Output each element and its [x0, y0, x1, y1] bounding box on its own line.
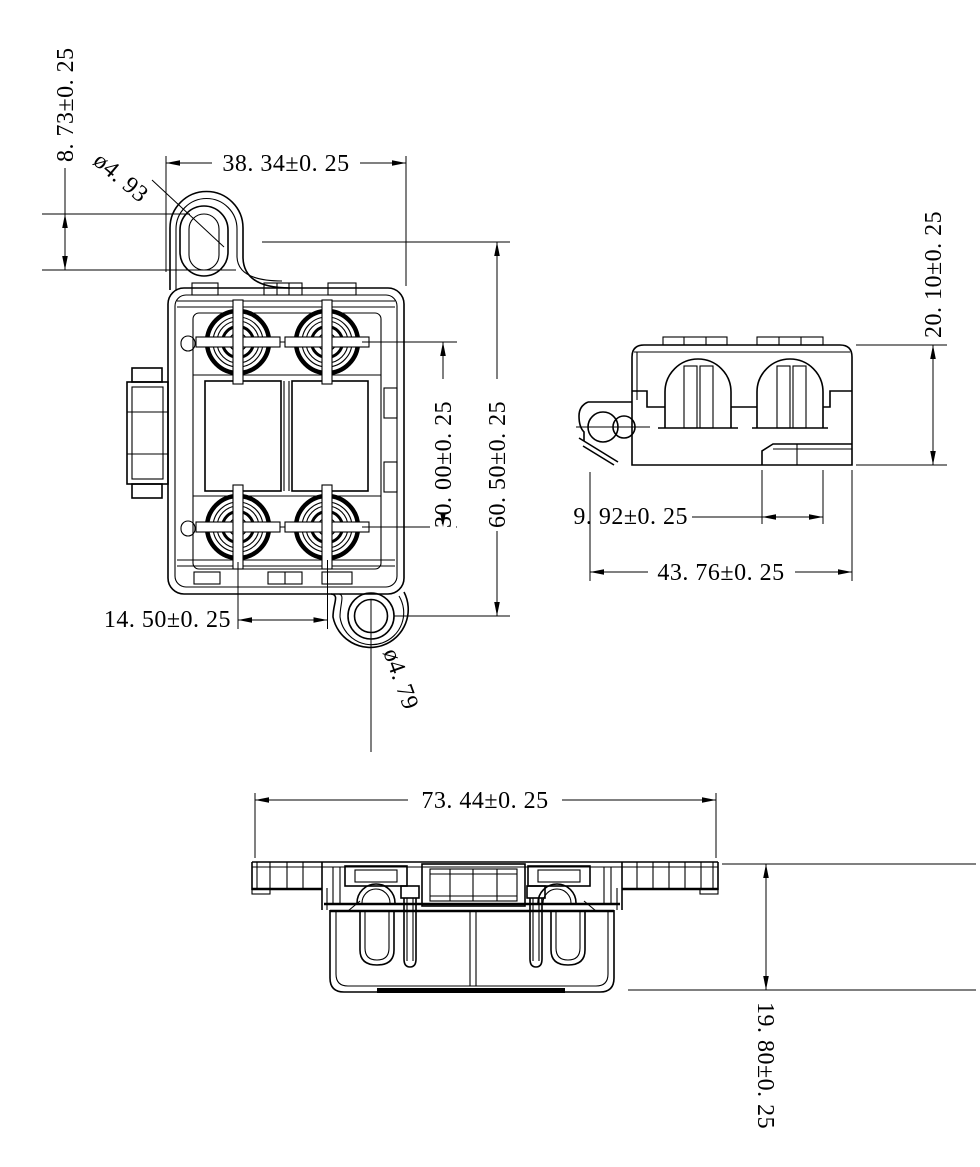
slot-hole-outer [180, 206, 228, 276]
retention-pin [527, 886, 545, 967]
dim-side-height: 20. 10±0. 25 [856, 211, 947, 465]
terminal-stud [285, 485, 369, 569]
dim-bottom-height-label: 19. 80±0. 25 [752, 1002, 778, 1129]
dim-stud-spacing: 14. 50±0. 25 [104, 560, 328, 633]
technical-drawing: 8. 73±0. 25 ø4. 93 38. 34±0. 25 30. 00±0… [0, 0, 980, 1167]
dim-top-width: 38. 34±0. 25 [166, 151, 406, 286]
technical-drawing-page: 8. 73±0. 25 ø4. 93 38. 34±0. 25 30. 00±0… [0, 0, 980, 1167]
slot-hole-inner [189, 214, 219, 270]
retention-pin [401, 886, 419, 967]
dim-bottom-width-label: 73. 44±0. 25 [421, 788, 548, 814]
dim-slot-diameter-label: ø4. 93 [88, 148, 153, 208]
right-wall-rib [384, 462, 397, 492]
mounting-tab-top [170, 192, 290, 291]
mounting-tab-bottom [331, 592, 408, 647]
dim-side-depth-label: 43. 76±0. 25 [657, 560, 784, 586]
terminal-cover-arch [665, 359, 731, 428]
dim-hole-diameter: ø4. 79 [371, 600, 423, 752]
side-view: 20. 10±0. 25 9. 92±0. 25 43. 76±0. 25 [573, 211, 947, 586]
right-wall-rib [384, 388, 397, 418]
dim-slot-length: 8. 73±0. 25 [42, 47, 236, 270]
dim-bottom-height: 19. 80±0. 25 [628, 864, 976, 1129]
dim-stud-pitch-label: 30. 00±0. 25 [431, 401, 457, 528]
dim-stud-pitch: 30. 00±0. 25 [362, 342, 457, 531]
dim-bottom-width: 73. 44±0. 25 [255, 788, 716, 858]
side-bracket-tab [576, 402, 650, 465]
bottom-body [322, 862, 622, 993]
dim-slot-length-label: 8. 73±0. 25 [53, 47, 79, 162]
dim-side-height-label: 20. 10±0. 25 [921, 211, 947, 338]
dim-stud-spacing-label: 14. 50±0. 25 [104, 607, 231, 633]
side-connector [127, 368, 168, 498]
terminal-stud [196, 485, 280, 569]
center-windows [205, 381, 368, 491]
dim-side-step-label: 9. 92±0. 25 [573, 504, 688, 530]
bottom-face-edge [377, 988, 565, 993]
side-body [632, 337, 852, 465]
terminal-studs [196, 300, 369, 569]
front-view: 8. 73±0. 25 ø4. 93 38. 34±0. 25 30. 00±0… [42, 47, 511, 752]
dim-hole-diameter-label: ø4. 79 [377, 645, 423, 713]
bottom-view: 73. 44±0. 25 19. 80±0. 25 [252, 788, 976, 1129]
dim-top-width-label: 38. 34±0. 25 [222, 151, 349, 177]
dim-hole-span-label: 60. 50±0. 25 [485, 401, 511, 528]
dim-side-step: 9. 92±0. 25 [573, 470, 823, 530]
